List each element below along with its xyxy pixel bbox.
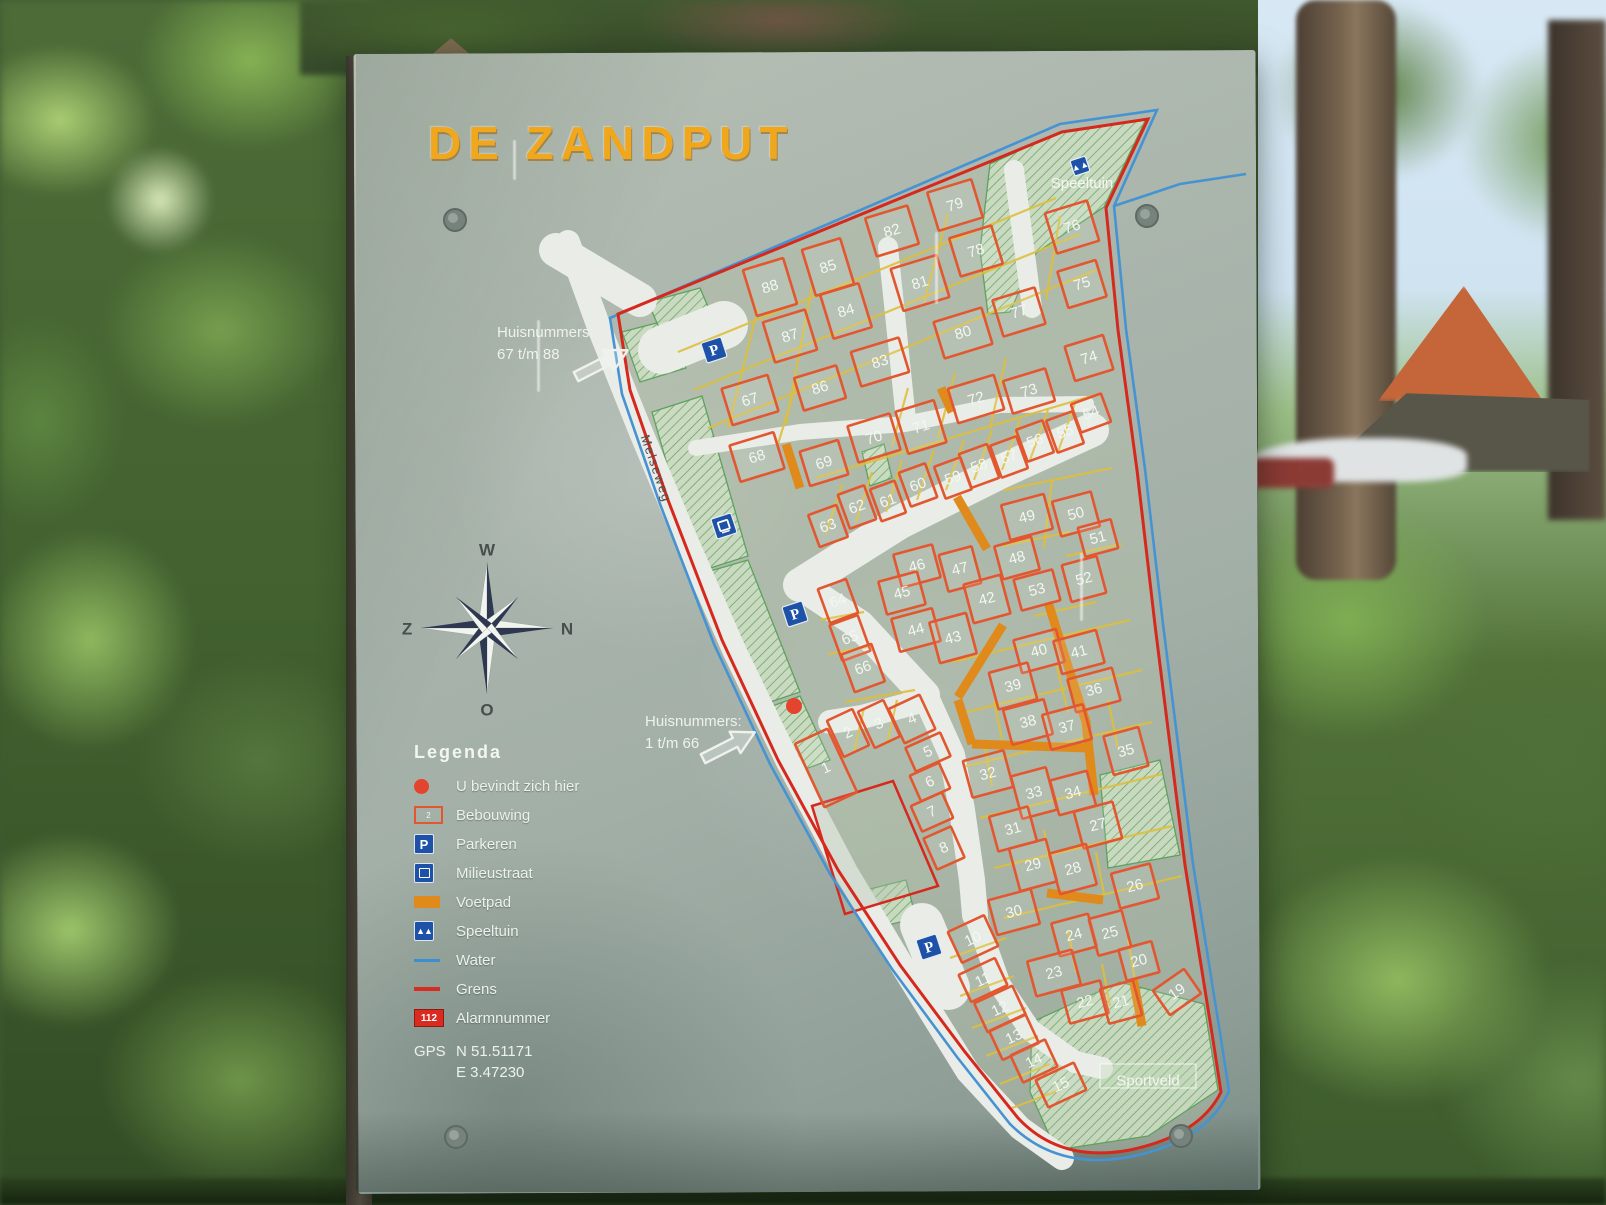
scratch-mark: [513, 140, 516, 180]
scratch-mark: [537, 320, 540, 392]
legend-item-park: PParkeren: [414, 835, 644, 853]
you-are-here-dot: [786, 698, 802, 714]
photo-of-site-map-sign: { "sign": { "title": "DE ZANDPUT", "lege…: [0, 0, 1606, 1205]
plot-27: 27: [1074, 801, 1122, 848]
gps-east: E 3.47230: [456, 1064, 532, 1081]
park-icon: P: [414, 834, 448, 854]
scratch-mark: [935, 232, 938, 304]
legend-item-label: Voetpad: [456, 894, 511, 911]
compass-letter-bottom: O: [480, 701, 493, 720]
water-line: [1114, 174, 1246, 206]
annotation-text: 67 t/m 88: [497, 346, 560, 363]
gps-label: GPS: [414, 1043, 456, 1085]
legend-item-voet: Voetpad: [414, 893, 644, 911]
compass-letter-right: N: [561, 620, 573, 639]
plot-20: 20: [1118, 941, 1159, 981]
plot-52: 52: [1062, 556, 1107, 602]
compass-letter-left: Z: [402, 620, 412, 639]
legend-item-milieu: Milieustraat: [414, 864, 644, 882]
legend-item-grens: Grens: [414, 980, 644, 998]
legend-item-alarm: 112Alarmnummer: [414, 1009, 644, 1027]
compass-rose: WNOZ: [402, 541, 573, 720]
legend-item-speel: ▲▲Speeltuin: [414, 922, 644, 940]
screw: [444, 209, 466, 231]
plot-21: 21: [1100, 980, 1142, 1024]
legend-item-label: Water: [456, 952, 495, 969]
beb-icon: 2: [414, 806, 448, 824]
gps-north: N 51.51171: [456, 1043, 532, 1060]
legend-item-water: Water: [414, 951, 644, 969]
legend-item-label: Speeltuin: [456, 923, 519, 940]
legend-item-dot: U bevindt zich hier: [414, 777, 644, 795]
milieu-icon: [414, 863, 448, 883]
annotation-text: 1 t/m 66: [645, 735, 699, 752]
speel-icon: ▲▲: [414, 921, 448, 941]
legend-item-label: Milieustraat: [456, 865, 533, 882]
plot-42: 42: [963, 575, 1010, 623]
grens-icon: [414, 987, 448, 991]
screw: [445, 1126, 467, 1148]
screw: [1170, 1125, 1192, 1147]
legend-item-label: Bebouwing: [456, 807, 530, 824]
legend-item-label: Grens: [456, 981, 497, 998]
gps-coordinates: GPS N 51.51171 E 3.47230: [414, 1043, 644, 1085]
dot-icon: [414, 779, 448, 794]
huisnummers-annotation: Huisnummers:1 t/m 66: [645, 713, 760, 769]
legend-item-beb: 2Bebouwing: [414, 806, 644, 824]
svg-text:Sportveld: Sportveld: [1116, 1073, 1179, 1090]
legend-item-label: Alarmnummer: [456, 1010, 550, 1027]
annotation-text: Huisnummers:: [497, 324, 594, 341]
compass-letter-top: W: [479, 541, 496, 560]
legend-item-label: Parkeren: [456, 836, 517, 853]
sportveld-label: Sportveld: [1100, 1064, 1196, 1090]
scratch-mark: [1080, 553, 1083, 621]
legend: Legenda U bevindt zich hier2BebouwingPPa…: [414, 742, 644, 1085]
voet-icon: [414, 896, 448, 908]
foliage-left: [0, 0, 375, 1205]
tree-trunk: [1296, 0, 1396, 580]
annotation-text: Huisnummers:: [645, 713, 742, 730]
legend-item-label: U bevindt zich hier: [456, 778, 579, 795]
screw: [1136, 205, 1158, 227]
alarm-icon: 112: [414, 1009, 448, 1027]
water-icon: [414, 959, 448, 962]
legend-heading: Legenda: [414, 742, 644, 763]
car-shape: [1250, 458, 1334, 488]
speeltuin-label: Speeltuin: [1051, 175, 1114, 192]
